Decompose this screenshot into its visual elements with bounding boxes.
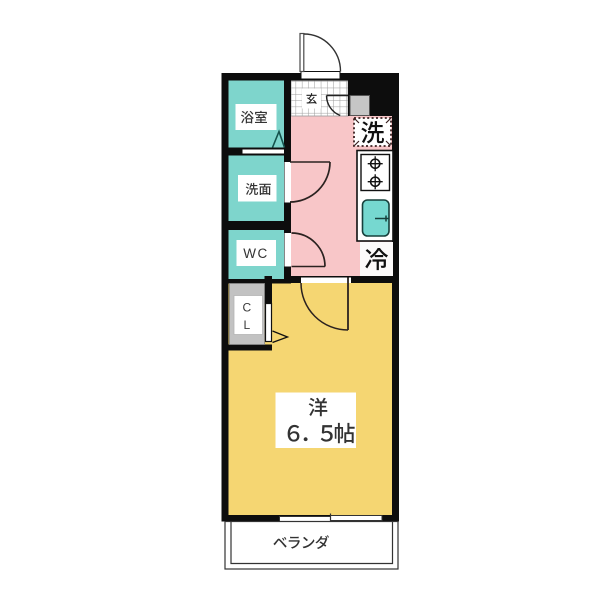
svg-text:WC: WC bbox=[243, 246, 269, 261]
svg-text:C: C bbox=[242, 300, 251, 314]
svg-text:L: L bbox=[243, 318, 250, 332]
